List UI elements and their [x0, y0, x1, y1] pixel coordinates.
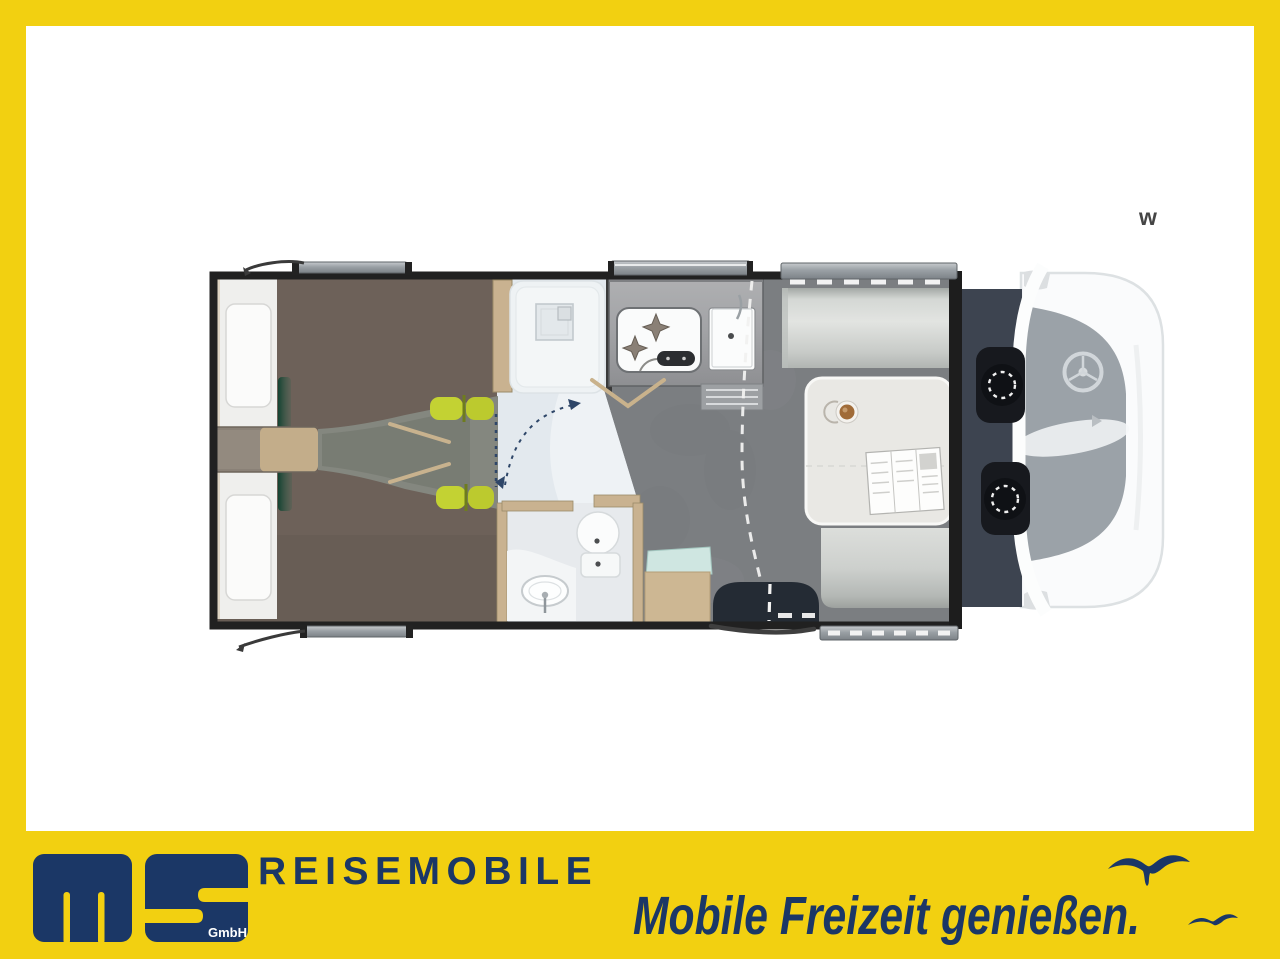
- svg-text:REISEMOBILE: REISEMOBILE: [258, 850, 598, 893]
- svg-text:w: w: [1138, 204, 1157, 230]
- svg-text:Mobile Freizeit genießen.: Mobile Freizeit genießen.: [633, 886, 1140, 946]
- svg-text:GmbH: GmbH: [208, 925, 247, 940]
